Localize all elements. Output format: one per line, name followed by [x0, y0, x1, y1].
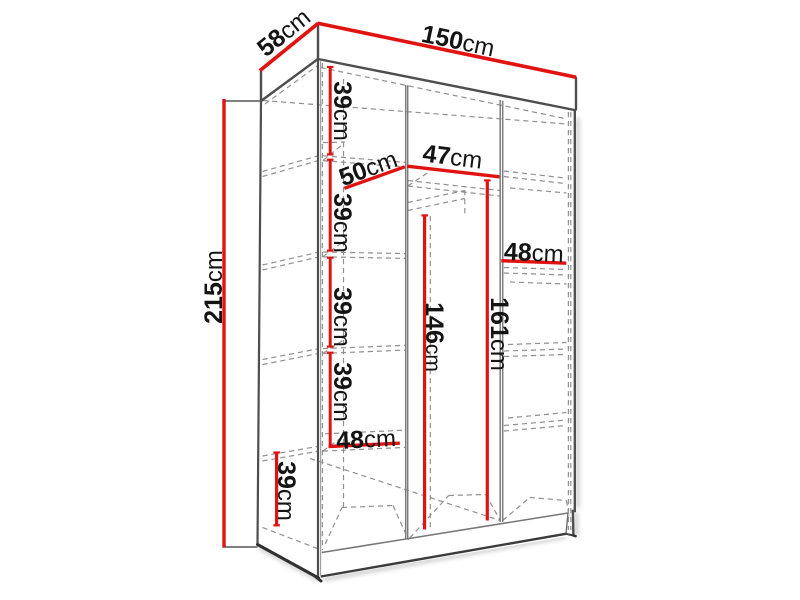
svg-text:39cm: 39cm: [272, 461, 300, 521]
svg-text:39cm: 39cm: [328, 287, 356, 347]
svg-text:39cm: 39cm: [328, 81, 356, 141]
svg-text:39cm: 39cm: [328, 193, 356, 253]
svg-text:215cm: 215cm: [200, 250, 228, 324]
svg-text:48cm: 48cm: [503, 238, 564, 269]
svg-text:48cm: 48cm: [335, 424, 396, 455]
svg-text:39cm: 39cm: [328, 362, 356, 422]
svg-text:146cm: 146cm: [420, 302, 448, 372]
svg-text:161cm: 161cm: [485, 297, 513, 371]
